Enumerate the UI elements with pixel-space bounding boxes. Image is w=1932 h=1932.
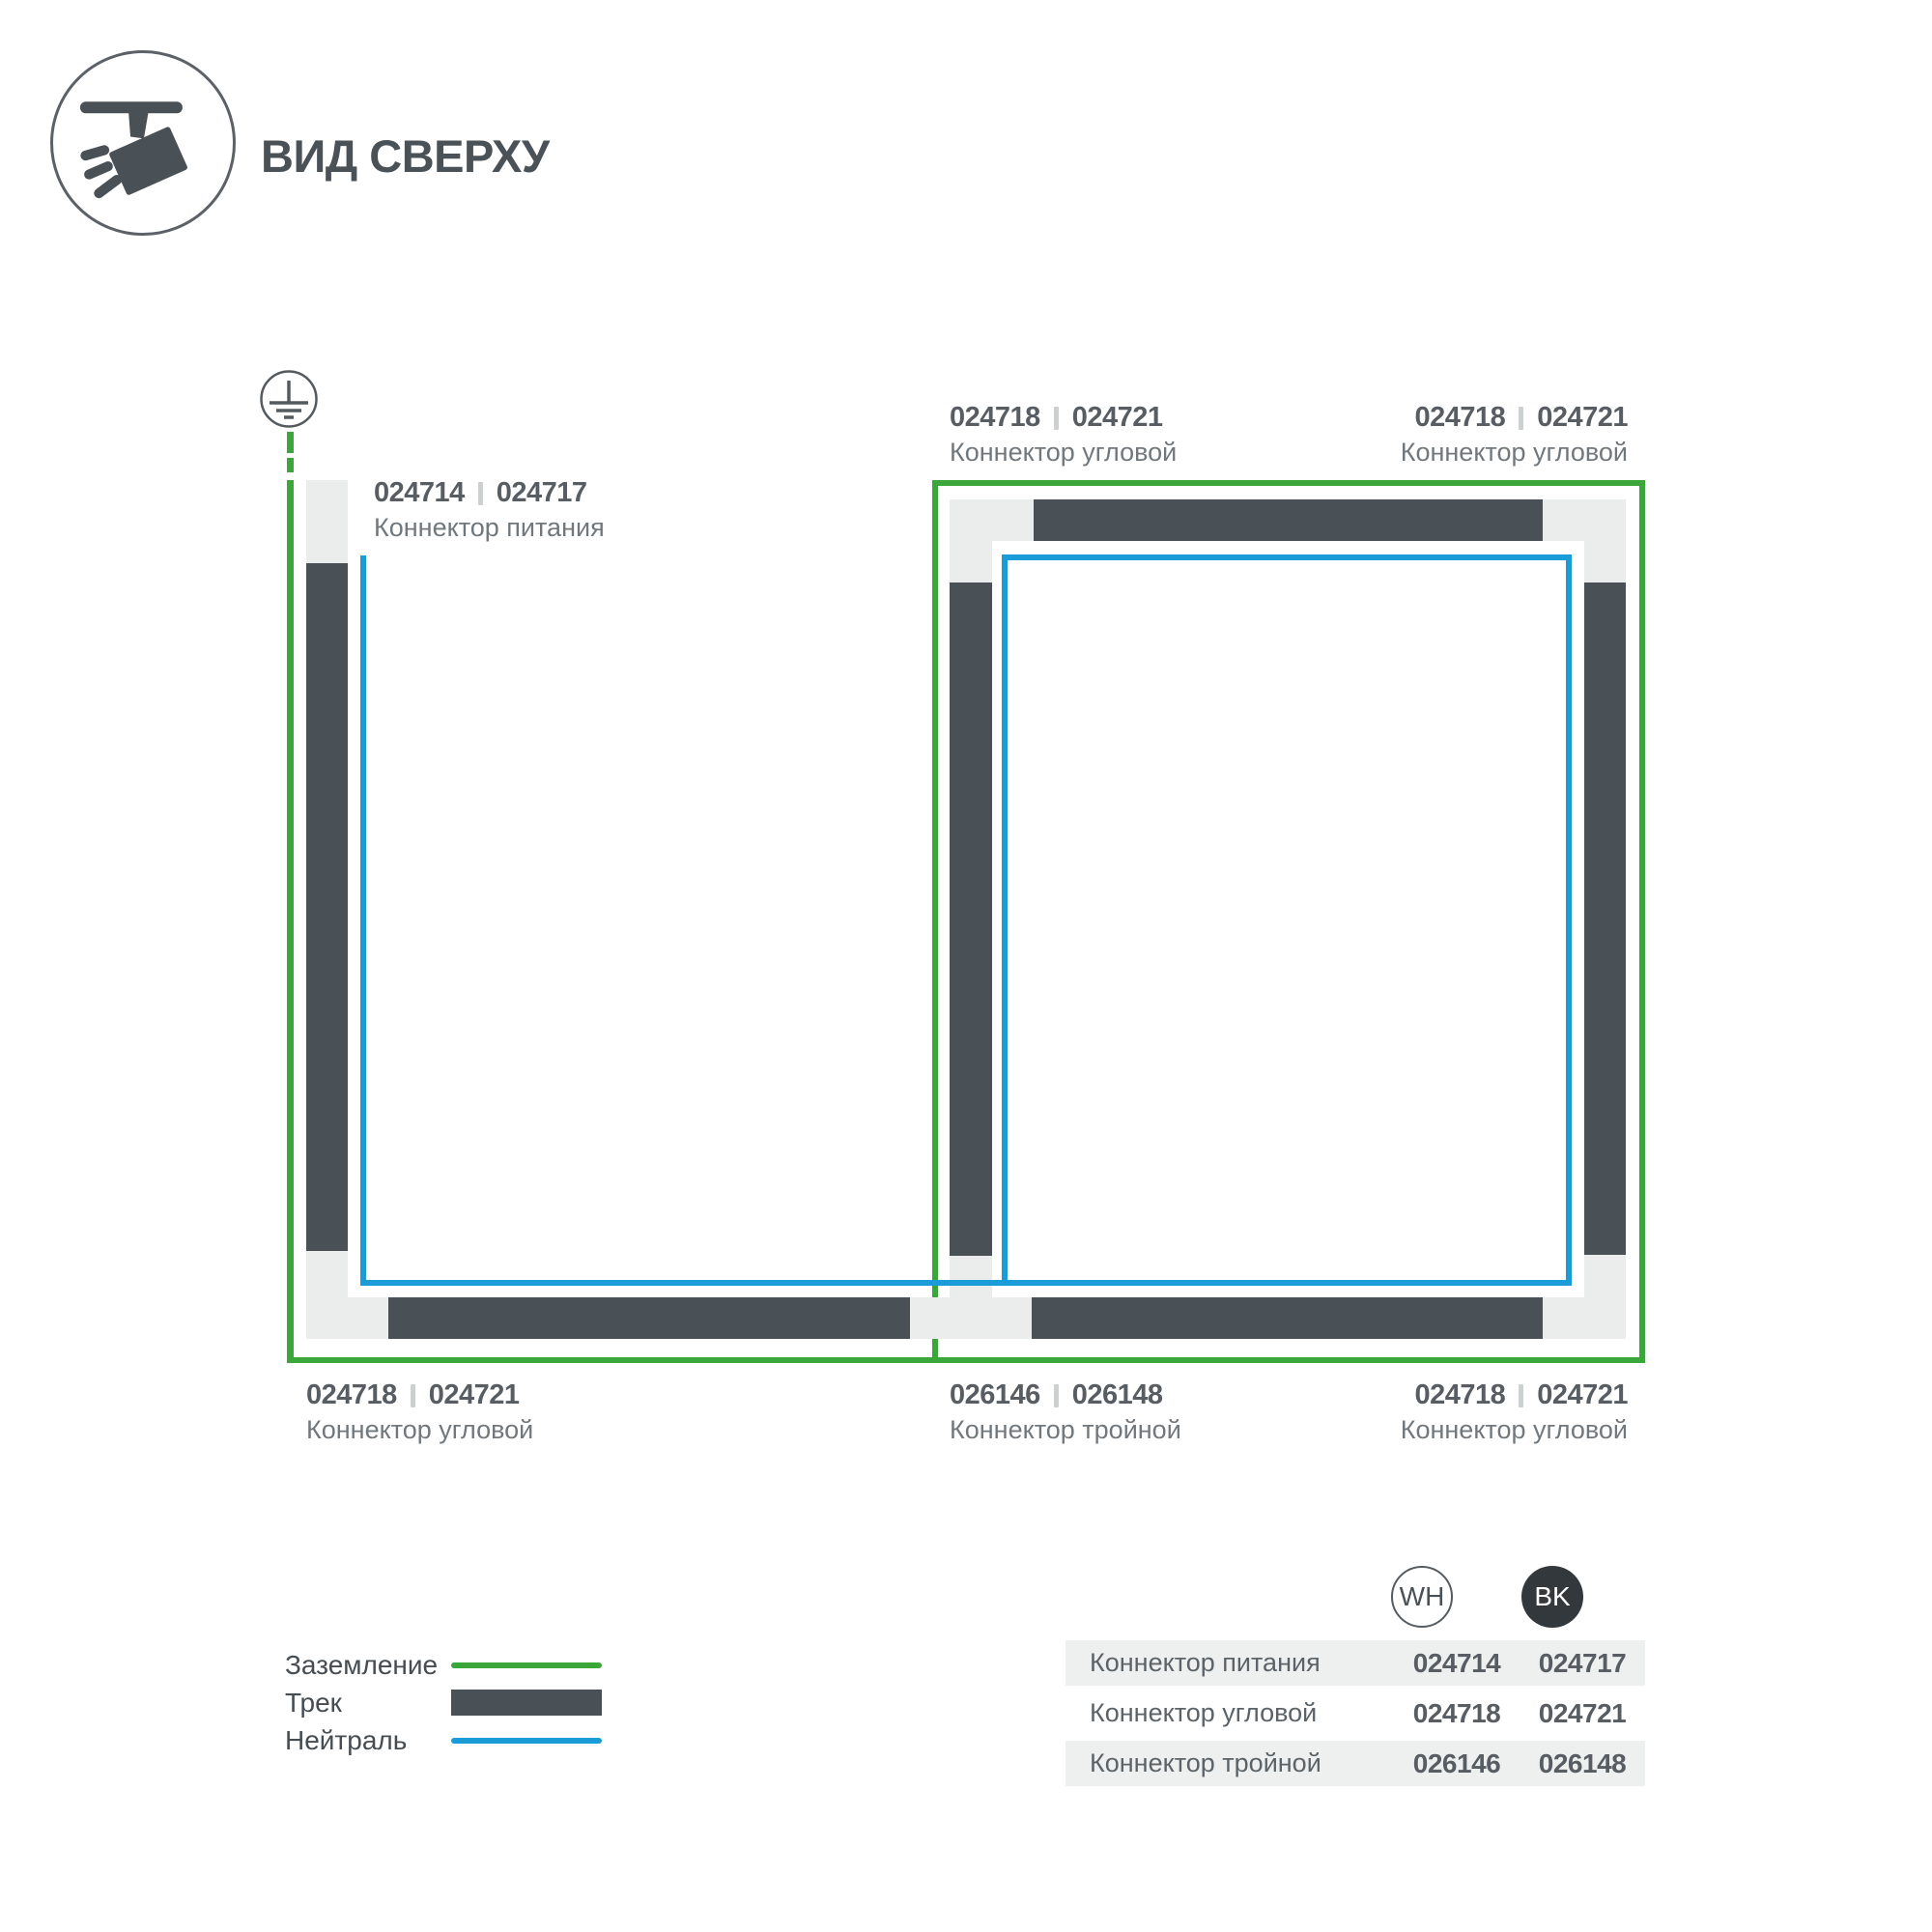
track-segment: [1034, 499, 1543, 541]
ground-line-swatch: [451, 1662, 602, 1668]
part-codes: 024718 024721: [950, 404, 1177, 432]
legend: Заземление Трек Нейтраль: [285, 1646, 602, 1759]
code-wh: 024718: [950, 404, 1040, 432]
separator: [1054, 407, 1059, 430]
track-segment: [388, 1297, 910, 1339]
label-corner-bottom-left: 024718 024721 Коннектор угловой: [306, 1381, 533, 1443]
track-swatch: [451, 1690, 602, 1716]
neutral-line-left-vertical: [360, 555, 366, 1286]
part-name: Коннектор угловой: [950, 440, 1177, 466]
separator: [1054, 1384, 1059, 1407]
part-name-cell: Коннектор угловой: [1065, 1698, 1394, 1728]
part-name-cell: Коннектор тройной: [1065, 1748, 1394, 1778]
part-codes: 024718 024721: [306, 1381, 533, 1409]
corner-connector-piece: [950, 541, 992, 582]
wh-code-cell: 024714: [1394, 1648, 1520, 1679]
track-segment: [950, 582, 992, 1256]
track-segment: [1584, 582, 1626, 1255]
power-connector-piece: [306, 480, 348, 563]
label-corner-top-right: 024718 024721 Коннектор угловой: [1401, 404, 1628, 466]
part-name: Коннектор угловой: [1401, 1417, 1628, 1443]
label-triple-connector: 026146 026148 Коннектор тройной: [950, 1381, 1181, 1443]
wh-code-cell: 024718: [1394, 1698, 1520, 1729]
code-bk: 024721: [1072, 404, 1163, 432]
part-codes: 024714 024717: [374, 479, 605, 507]
table-row: Коннектор питания 024714 024717: [1065, 1640, 1645, 1686]
bk-code-cell: 024721: [1520, 1698, 1645, 1729]
part-name: Коннектор угловой: [1401, 440, 1628, 466]
legend-label: Нейтраль: [285, 1725, 451, 1756]
label-corner-bottom-right: 024718 024721 Коннектор угловой: [1401, 1381, 1628, 1443]
part-name: Коннектор тройной: [950, 1417, 1181, 1443]
code-wh: 024718: [1414, 404, 1505, 432]
separator: [1519, 407, 1523, 430]
code-bk: 026148: [1072, 1381, 1163, 1409]
triple-connector-piece: [910, 1297, 1032, 1339]
separator: [1519, 1384, 1523, 1407]
part-codes: 024718 024721: [1401, 404, 1628, 432]
ground-line-dash: [287, 458, 294, 472]
table-row: Коннектор тройной 026146 026148: [1065, 1741, 1645, 1786]
ground-line-dash: [287, 432, 294, 453]
corner-connector-piece: [1543, 499, 1626, 541]
bk-code-cell: 024717: [1520, 1648, 1645, 1679]
neutral-line-bottom: [360, 1280, 1006, 1286]
legend-item-neutral: Нейтраль: [285, 1721, 602, 1759]
label-power-connector: 024714 024717 Коннектор питания: [374, 479, 605, 541]
corner-connector-piece: [306, 1251, 348, 1339]
code-bk: 024717: [497, 479, 587, 507]
separator: [478, 482, 483, 505]
track-spotlight-icon: [50, 50, 236, 236]
ground-earth-icon: [259, 369, 319, 429]
legend-item-ground: Заземление: [285, 1646, 602, 1684]
code-wh: 024714: [374, 479, 465, 507]
code-wh: 024718: [306, 1381, 397, 1409]
track-spotlight-icon-glyph: [53, 53, 233, 233]
triple-connector-piece: [950, 1256, 992, 1297]
neutral-line-swatch: [451, 1738, 602, 1744]
part-codes: 024718 024721: [1401, 1381, 1628, 1409]
code-bk: 024721: [1537, 1381, 1628, 1409]
parts-table: WH BK Коннектор питания 024714 024717 Ко…: [1065, 1566, 1645, 1791]
wh-code-cell: 026146: [1394, 1748, 1520, 1779]
code-wh: 026146: [950, 1381, 1040, 1409]
part-name: Коннектор питания: [374, 515, 605, 541]
neutral-line-right-loop: [1002, 554, 1572, 1286]
corner-connector-piece: [1543, 1297, 1584, 1339]
legend-label: Заземление: [285, 1650, 451, 1681]
part-name: Коннектор угловой: [306, 1417, 533, 1443]
separator: [411, 1384, 415, 1407]
bk-code-cell: 026148: [1520, 1748, 1645, 1779]
code-bk: 024721: [429, 1381, 520, 1409]
part-codes: 026146 026148: [950, 1381, 1181, 1409]
ground-line-left-vertical: [287, 480, 294, 1363]
code-wh: 024718: [1414, 1381, 1505, 1409]
code-bk: 024721: [1537, 404, 1628, 432]
label-corner-top-left: 024718 024721 Коннектор угловой: [950, 404, 1177, 466]
corner-connector-piece: [1584, 541, 1626, 582]
corner-connector-piece: [1584, 1253, 1626, 1339]
part-name-cell: Коннектор питания: [1065, 1648, 1394, 1678]
track-segment: [306, 563, 348, 1251]
parts-table-header: WH BK: [1065, 1566, 1645, 1628]
legend-label: Трек: [285, 1688, 451, 1719]
corner-connector-piece: [950, 499, 1034, 541]
color-badge-black: BK: [1521, 1566, 1583, 1628]
table-row: Коннектор угловой 024718 024721: [1065, 1690, 1645, 1736]
corner-connector-piece: [348, 1297, 388, 1339]
track-segment: [1032, 1297, 1543, 1339]
legend-item-track: Трек: [285, 1684, 602, 1721]
page-title: ВИД СВЕРХУ: [261, 129, 550, 183]
color-badge-white: WH: [1391, 1566, 1453, 1628]
